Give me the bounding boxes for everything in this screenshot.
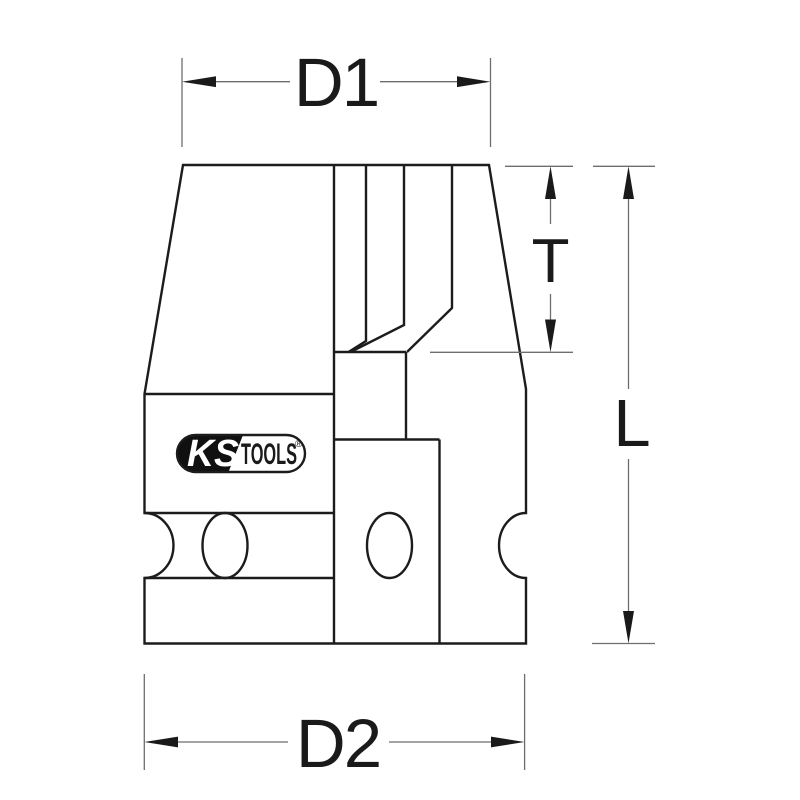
- facet-edge-3: [351, 165, 405, 352]
- ks-tools-logo: KS TOOLS ®: [177, 433, 305, 475]
- d2-arrow-left: [144, 737, 178, 748]
- d1-arrow-right: [457, 76, 491, 87]
- dimension-d1: D1: [182, 44, 491, 147]
- diagram-canvas: KS TOOLS ® D1 D2: [0, 0, 800, 800]
- t-arrow-down: [545, 320, 556, 353]
- d2-label: D2: [296, 705, 380, 782]
- l-ink: L: [613, 166, 650, 643]
- t-label: T: [532, 227, 570, 296]
- d2-arrow-right: [491, 737, 525, 748]
- pin-hole-front: [367, 513, 412, 578]
- d1-ink: D1: [182, 44, 491, 121]
- d1-arrow-left: [182, 76, 216, 87]
- logo-ks-text: KS: [187, 433, 239, 475]
- l-arrow-down: [623, 611, 634, 644]
- logo-tools-text: TOOLS: [241, 438, 297, 471]
- facet-edge-4: [407, 165, 452, 352]
- l-arrow-up: [623, 166, 634, 199]
- pin-hole-left: [203, 513, 248, 578]
- dimension-d2: D2: [144, 674, 524, 782]
- dimension-l: L: [592, 166, 655, 643]
- l-label: L: [613, 386, 650, 461]
- d1-label: D1: [294, 44, 378, 121]
- socket-dimension-diagram: KS TOOLS ® D1 D2: [0, 0, 800, 800]
- d2-ink: D2: [144, 705, 524, 782]
- socket-drawing: [145, 165, 527, 644]
- t-arrow-up: [545, 166, 556, 199]
- t-ink: T: [532, 166, 570, 352]
- socket-outline: [145, 165, 527, 644]
- facet-edge-2: [349, 165, 367, 352]
